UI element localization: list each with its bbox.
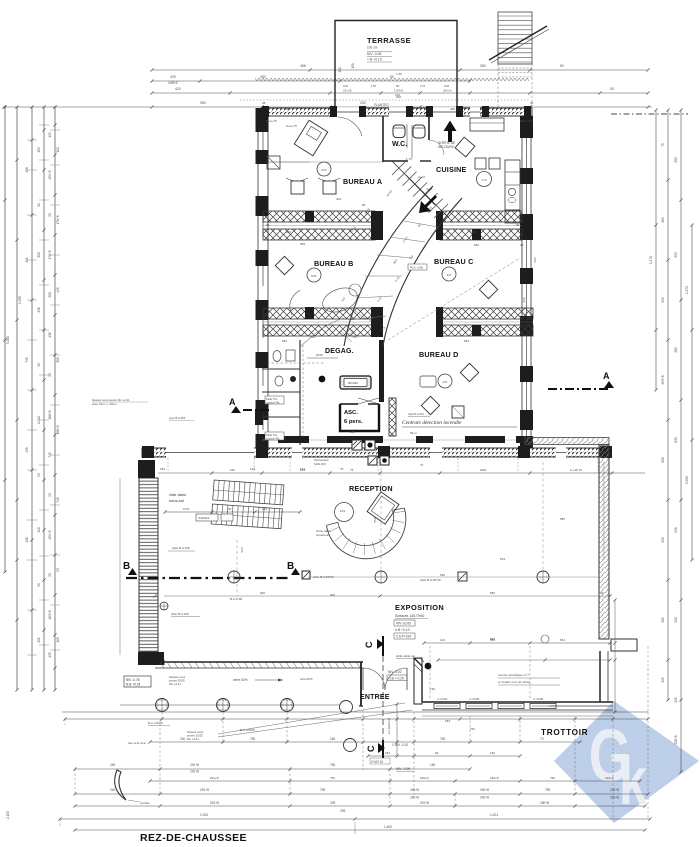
svg-text:183: 183 <box>385 751 390 755</box>
svg-text:160+8: 160+8 <box>480 788 489 792</box>
svg-text:RECEPTION: RECEPTION <box>349 484 393 493</box>
svg-text:189: 189 <box>350 430 355 434</box>
svg-text:910: 910 <box>674 617 678 623</box>
svg-text:100 cm: 100 cm <box>367 46 378 50</box>
svg-text:EXPOSITION: EXPOSITION <box>395 603 444 612</box>
svg-text:5.200: 5.200 <box>6 336 10 344</box>
svg-text:265: 265 <box>661 617 665 623</box>
svg-text:964: 964 <box>522 297 526 302</box>
svg-text:1.024: 1.024 <box>490 813 498 817</box>
svg-text:140: 140 <box>37 527 41 533</box>
svg-text:293+8: 293+8 <box>661 375 665 384</box>
svg-text:99+1: 99+1 <box>410 431 417 435</box>
svg-text:752: 752 <box>470 727 475 731</box>
svg-text:445: 445 <box>56 287 60 293</box>
svg-text:75: 75 <box>340 467 344 471</box>
svg-text:594: 594 <box>464 339 469 343</box>
svg-text:533: 533 <box>500 557 505 561</box>
svg-text:GAINES: GAINES <box>198 516 209 520</box>
svg-text:500: 500 <box>330 593 335 597</box>
svg-text:429: 429 <box>170 75 176 79</box>
svg-text:verre 50%: verre 50% <box>233 678 248 682</box>
svg-text:supérieure: supérieure <box>316 533 331 537</box>
svg-text:184: 184 <box>300 467 305 471</box>
svg-text:A+A+75: A+A+75 <box>286 124 297 128</box>
svg-text:630: 630 <box>661 457 665 463</box>
svg-text:A64: A64 <box>533 257 537 263</box>
svg-text:459+8: 459+8 <box>48 170 52 179</box>
svg-text:160+8: 160+8 <box>480 796 489 800</box>
svg-text:90x190: 90x190 <box>348 381 358 385</box>
svg-text:176+8: 176+8 <box>48 250 52 259</box>
svg-text:459+8: 459+8 <box>48 530 52 539</box>
svg-text:745: 745 <box>56 497 60 503</box>
svg-text:vide dans: vide dans <box>169 492 186 497</box>
svg-text:449: 449 <box>285 107 290 111</box>
svg-text:B.A 1700: B.A 1700 <box>230 597 243 601</box>
svg-text:vitre 50%: vitre 50% <box>300 677 313 681</box>
svg-text:38: 38 <box>262 101 266 105</box>
svg-text:162: 162 <box>230 468 235 472</box>
svg-text:140: 140 <box>430 687 435 691</box>
svg-text:299: 299 <box>340 809 346 813</box>
svg-text:745: 745 <box>48 452 52 458</box>
svg-text:950: 950 <box>661 537 665 543</box>
svg-text:390: 390 <box>200 101 206 105</box>
svg-text:100: 100 <box>56 147 60 153</box>
svg-text:200: 200 <box>360 101 366 105</box>
svg-text:90: 90 <box>37 583 41 587</box>
svg-text:C: C <box>364 641 374 648</box>
svg-text:m 4.544: m 4.544 <box>437 697 448 701</box>
svg-text:93: 93 <box>56 568 60 572</box>
svg-text:184: 184 <box>160 467 165 471</box>
svg-text:143: 143 <box>250 467 255 471</box>
svg-text:436: 436 <box>48 332 52 338</box>
svg-text:SECOURS: SECOURS <box>438 145 454 149</box>
svg-text:5.950: 5.950 <box>685 476 689 484</box>
svg-text:AQUILA RA: AQUILA RA <box>408 412 424 416</box>
svg-text:sur bâtiment: sur bâtiment <box>387 718 391 735</box>
svg-text:128: 128 <box>25 537 29 543</box>
svg-text:1.50: 1.50 <box>396 72 402 76</box>
svg-text:40A: 40A <box>336 197 341 201</box>
svg-text:180+8: 180+8 <box>410 788 419 792</box>
svg-text:vendue: vendue <box>140 801 150 805</box>
svg-text:NIV ±0.00: NIV ±0.00 <box>396 622 411 626</box>
svg-text:90: 90 <box>48 573 52 577</box>
svg-text:959: 959 <box>674 252 678 258</box>
svg-text:Surfaces 145.79m2: Surfaces 145.79m2 <box>395 614 425 618</box>
svg-text:172: 172 <box>420 84 425 88</box>
svg-text:448+5: 448+5 <box>168 81 178 85</box>
svg-text:291+8: 291+8 <box>420 801 429 805</box>
svg-text:75: 75 <box>350 468 354 472</box>
svg-text:1.010: 1.010 <box>37 416 41 424</box>
svg-text:589: 589 <box>490 637 495 641</box>
svg-text:150: 150 <box>338 67 342 73</box>
svg-text:2+13: 2+13 <box>418 175 425 179</box>
svg-text:96: 96 <box>362 203 366 207</box>
svg-text:263: 263 <box>262 507 267 511</box>
svg-text:72: 72 <box>420 463 424 467</box>
svg-text:140: 140 <box>440 638 445 642</box>
svg-text:m 4.546: m 4.546 <box>533 697 544 701</box>
svg-text:750: 750 <box>440 737 446 741</box>
svg-text:C: C <box>366 745 376 752</box>
svg-text:hau +2.41 sous: hau +2.41 sous <box>128 741 147 745</box>
svg-text:à remplir avec du béton: à remplir avec du béton <box>498 680 531 684</box>
svg-text:120: 120 <box>310 335 315 339</box>
svg-text:B+A+75: B+A+75 <box>266 119 277 123</box>
svg-text:sous-sol: sous-sol <box>169 498 184 503</box>
svg-text:226+8: 226+8 <box>674 735 678 744</box>
svg-text:30: 30 <box>266 223 270 227</box>
svg-text:Niv +2.41: Niv +2.41 <box>169 682 181 686</box>
svg-text:750: 750 <box>320 788 326 792</box>
svg-text:50: 50 <box>396 84 400 88</box>
svg-text:NIV -0.52: NIV -0.52 <box>388 670 402 674</box>
svg-text:6 pers.: 6 pers. <box>344 419 363 425</box>
svg-text:2*43+15: 2*43+15 <box>371 760 383 764</box>
svg-text:283: 283 <box>661 217 665 223</box>
svg-text:750: 750 <box>545 788 551 792</box>
svg-text:CUISINE: CUISINE <box>436 165 467 174</box>
svg-text:283: 283 <box>674 157 678 163</box>
svg-text:630: 630 <box>674 437 678 443</box>
svg-text:BUREAU D: BUREAU D <box>419 350 459 359</box>
svg-text:TERRASSE: TERRASSE <box>367 36 411 45</box>
svg-text:Niv +2.41: Niv +2.41 <box>187 737 199 741</box>
svg-text:530: 530 <box>440 573 445 577</box>
svg-text:3+8: 3+8 <box>426 187 431 191</box>
svg-text:420: 420 <box>175 87 181 91</box>
svg-text:REZ-DE-CHAUSSEE: REZ-DE-CHAUSSEE <box>140 832 247 844</box>
svg-text:225: 225 <box>674 697 678 703</box>
svg-text:while table top: while table top <box>396 654 416 658</box>
svg-text:N.B +0.23: N.B +0.23 <box>126 683 140 687</box>
svg-text:550: 550 <box>490 591 495 595</box>
svg-text:247: 247 <box>447 273 452 277</box>
svg-text:300: 300 <box>56 357 60 363</box>
svg-text:BUREAU A: BUREAU A <box>343 177 382 186</box>
svg-text:451: 451 <box>25 257 29 263</box>
svg-text:B+A+759: B+A+759 <box>520 119 533 123</box>
svg-text:couche-TAL: couche-TAL <box>266 436 280 440</box>
svg-text:PLANTES: PLANTES <box>374 103 389 107</box>
svg-text:247: 247 <box>321 168 326 172</box>
svg-text:W.C.: W.C. <box>392 141 407 148</box>
svg-text:100: 100 <box>444 84 449 88</box>
svg-text:2.150: 2.150 <box>6 811 10 819</box>
svg-text:75: 75 <box>661 143 665 147</box>
svg-text:183: 183 <box>445 719 450 723</box>
svg-text:241+6: 241+6 <box>443 89 452 93</box>
svg-text:458: 458 <box>25 167 29 173</box>
svg-text:2030: 2030 <box>316 353 323 357</box>
svg-text:291+8: 291+8 <box>200 788 209 792</box>
svg-text:458: 458 <box>300 64 306 68</box>
svg-text:1.170: 1.170 <box>649 256 653 264</box>
svg-text:couche-TAL: couche-TAL <box>266 400 280 404</box>
svg-text:949: 949 <box>300 242 305 246</box>
svg-text:90: 90 <box>48 373 52 377</box>
svg-text:PLA +100: PLA +100 <box>410 266 423 270</box>
svg-text:ENTREE: ENTREE <box>360 694 390 701</box>
svg-text:23+16: 23+16 <box>343 89 352 93</box>
svg-text:291+8: 291+8 <box>190 763 199 767</box>
svg-text:163: 163 <box>340 509 345 513</box>
svg-text:1071: 1071 <box>183 507 190 511</box>
svg-text:TROTTOIR: TROTTOIR <box>541 728 588 737</box>
svg-text:NIV -0.78: NIV -0.78 <box>126 678 140 682</box>
svg-text:1.76: 1.76 <box>406 157 412 161</box>
svg-text:959: 959 <box>661 297 665 303</box>
svg-text:BUREAU B: BUREAU B <box>314 259 354 268</box>
svg-text:163+8: 163+8 <box>48 610 52 619</box>
svg-text:745: 745 <box>25 357 29 363</box>
svg-text:1.54+6: 1.54+6 <box>394 89 404 93</box>
svg-text:240: 240 <box>110 763 116 767</box>
svg-text:pilier B.A 30*30: pilier B.A 30*30 <box>420 578 441 582</box>
svg-text:90: 90 <box>37 203 41 207</box>
svg-text:180+8: 180+8 <box>540 801 549 805</box>
svg-text:100: 100 <box>395 93 400 97</box>
svg-text:160: 160 <box>330 737 336 741</box>
svg-text:750: 750 <box>352 335 357 339</box>
svg-text:Centrale détection incendie: Centrale détection incendie <box>402 420 462 426</box>
svg-text:300: 300 <box>37 252 41 258</box>
svg-text:B: B <box>287 561 294 572</box>
svg-text:225: 225 <box>661 677 665 683</box>
svg-text:160+8: 160+8 <box>490 776 499 780</box>
svg-text:30: 30 <box>520 243 524 247</box>
svg-text:h.B +-0.25: h.B +-0.25 <box>389 677 404 681</box>
svg-text:240: 240 <box>110 788 116 792</box>
svg-text:BUREAU C: BUREAU C <box>434 257 474 266</box>
svg-text:+ B +0.10: + B +0.10 <box>367 58 382 62</box>
svg-text:546: 546 <box>470 230 475 234</box>
svg-text:930: 930 <box>674 527 678 533</box>
svg-text:m 4.545: m 4.545 <box>469 697 480 701</box>
svg-text:93: 93 <box>48 493 52 497</box>
svg-text:A +48 75: A +48 75 <box>570 468 582 472</box>
svg-text:435: 435 <box>48 652 52 658</box>
svg-text:451: 451 <box>37 637 41 643</box>
svg-text:435: 435 <box>25 447 29 453</box>
svg-text:226+8: 226+8 <box>610 796 619 800</box>
svg-text:1.400: 1.400 <box>384 825 392 829</box>
svg-text:73: 73 <box>540 737 544 741</box>
svg-text:50: 50 <box>610 87 614 91</box>
svg-text:299: 299 <box>330 801 336 805</box>
svg-text:168+8: 168+8 <box>48 410 52 419</box>
svg-text:NIV -0.08: NIV -0.08 <box>367 52 381 56</box>
svg-text:160: 160 <box>490 751 495 755</box>
svg-text:pilier B.A 225: pilier B.A 225 <box>172 546 190 550</box>
svg-text:DEGAG.: DEGAG. <box>325 348 354 355</box>
svg-text:99: 99 <box>435 751 439 755</box>
svg-text:A: A <box>603 371 610 381</box>
svg-text:585: 585 <box>560 517 565 521</box>
svg-text:h.5 P+297: h.5 P+297 <box>396 635 412 639</box>
svg-text:90: 90 <box>37 363 41 367</box>
svg-text:129: 129 <box>48 132 52 138</box>
svg-text:291+8: 291+8 <box>190 770 199 774</box>
svg-text:180+8: 180+8 <box>410 796 419 800</box>
svg-text:50: 50 <box>560 64 564 68</box>
svg-text:100: 100 <box>56 637 60 643</box>
svg-text:750: 750 <box>330 763 336 767</box>
svg-text:159: 159 <box>37 147 41 153</box>
svg-text:750: 750 <box>550 776 555 780</box>
svg-text:avec 10cm +- 26cm: avec 10cm +- 26cm <box>92 402 117 406</box>
svg-text:1.930: 1.930 <box>18 296 22 304</box>
svg-text:168+8: 168+8 <box>56 425 60 434</box>
svg-text:170: 170 <box>371 84 376 88</box>
svg-text:90: 90 <box>48 213 52 217</box>
svg-text:750: 750 <box>330 776 335 780</box>
svg-text:543: 543 <box>240 547 244 552</box>
svg-text:50: 50 <box>228 507 232 511</box>
svg-text:160: 160 <box>430 763 436 767</box>
svg-text:436: 436 <box>37 307 41 313</box>
svg-text:B.A +25/25: B.A +25/25 <box>148 721 163 725</box>
svg-text:176+8: 176+8 <box>56 215 60 224</box>
svg-text:ASC.: ASC. <box>344 410 358 416</box>
svg-text:283: 283 <box>674 347 678 353</box>
svg-text:30: 30 <box>516 223 520 227</box>
svg-text:30: 30 <box>530 101 534 105</box>
svg-text:445: 445 <box>450 107 455 111</box>
svg-text:100: 100 <box>343 84 348 88</box>
svg-text:550: 550 <box>373 517 377 522</box>
svg-text:226+8: 226+8 <box>605 776 614 780</box>
svg-text:poer B.A 205: poer B.A 205 <box>169 416 186 420</box>
svg-text:564: 564 <box>560 638 565 642</box>
svg-text:300: 300 <box>48 292 52 298</box>
svg-text:93: 93 <box>37 473 41 477</box>
svg-text:pilier B.A 225: pilier B.A 225 <box>171 612 189 616</box>
svg-text:B: B <box>123 561 130 572</box>
svg-text:594: 594 <box>282 339 287 343</box>
svg-text:2401: 2401 <box>480 468 487 472</box>
svg-text:750: 750 <box>250 737 256 741</box>
svg-text:240: 240 <box>180 737 186 741</box>
svg-text:A: A <box>229 397 236 407</box>
svg-text:T+0: T+0 <box>481 178 487 182</box>
svg-text:NIV -0.99: NIV -0.99 <box>396 767 410 771</box>
svg-text:247: 247 <box>443 380 448 384</box>
svg-text:180+8: 180+8 <box>420 776 429 780</box>
svg-text:Goutte mensifique 21+: Goutte mensifique 21+ <box>498 673 529 677</box>
svg-text:150: 150 <box>351 63 355 69</box>
svg-text:1 NIV -0.10: 1 NIV -0.10 <box>392 743 408 747</box>
svg-text:291+8: 291+8 <box>210 776 219 780</box>
svg-text:SAN.DIV: SAN.DIV <box>314 462 326 466</box>
svg-text:1.170: 1.170 <box>685 286 689 294</box>
svg-text:DAT: DAT <box>311 274 317 278</box>
svg-text:546: 546 <box>474 243 479 247</box>
svg-text:600: 600 <box>260 591 265 595</box>
svg-text:h.B +0.10: h.B +0.10 <box>395 628 410 632</box>
svg-text:949: 949 <box>286 230 291 234</box>
svg-text:1.024: 1.024 <box>200 813 208 817</box>
svg-text:291+8: 291+8 <box>210 801 219 805</box>
svg-text:250: 250 <box>480 64 486 68</box>
svg-text:226+8: 226+8 <box>610 788 619 792</box>
